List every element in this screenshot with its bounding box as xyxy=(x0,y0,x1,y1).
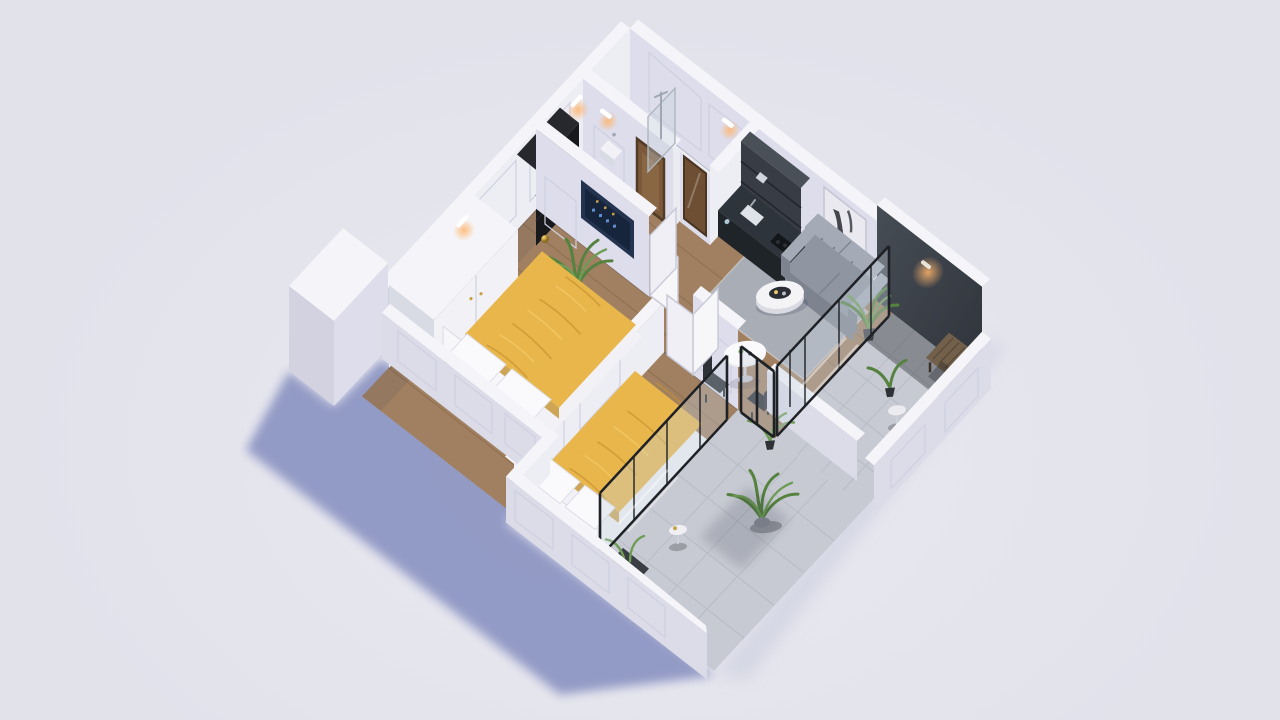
scene xyxy=(246,0,1005,720)
render-canvas: Isometric 3D floor-plan render of a two-… xyxy=(0,0,1280,720)
apartment-floorplan-3d: Isometric 3D floor-plan render of a two-… xyxy=(0,0,1280,720)
